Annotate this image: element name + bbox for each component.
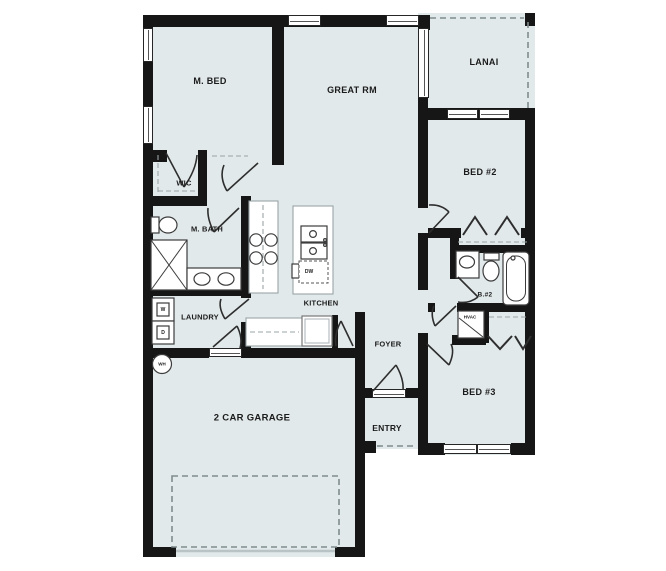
garage-entry-door: [213, 326, 241, 348]
label-bath2: B.#2: [478, 292, 493, 299]
bath2-vanity-icon: [456, 251, 479, 278]
label-m-bath: M. BATH: [191, 225, 223, 234]
msuite-hall-door: [222, 163, 258, 191]
floor-plan: M. BED GREAT RM LANAI BED #2 WIC M. BATH…: [0, 0, 666, 571]
pantry-door: [336, 321, 353, 346]
label-bed2: BED #2: [463, 167, 496, 177]
label-kitchen: KITCHEN: [304, 299, 339, 308]
label-washer: W: [161, 307, 166, 313]
refrigerator-icon: [302, 316, 332, 346]
label-water-heater: WH: [158, 362, 166, 367]
label-great-rm: GREAT RM: [327, 85, 377, 95]
hvac-door: [432, 306, 456, 326]
label-bed3: BED #3: [462, 387, 495, 397]
label-dishwasher: DW: [305, 269, 313, 275]
bed2-closet-bifold-icon: [463, 217, 519, 235]
label-wic: WIC: [176, 179, 191, 188]
sink-icon: [301, 226, 327, 259]
front-door: [373, 365, 403, 391]
label-lanai: LANAI: [470, 57, 499, 67]
label-garage: 2 CAR GARAGE: [214, 413, 290, 424]
toilet-icon: [151, 217, 177, 233]
bath2-door: [458, 277, 478, 302]
bed3-door: [427, 344, 453, 365]
laundry-door: [220, 299, 249, 319]
label-foyer: FOYER: [375, 340, 402, 349]
bed3-closet-bifold-icon: [488, 336, 531, 349]
double-vanity-icon: [187, 268, 241, 290]
garage-door-dashed: [172, 476, 339, 551]
label-dryer: D: [161, 330, 165, 336]
label-m-bed: M. BED: [193, 76, 226, 86]
label-hvac: HVAC: [464, 315, 476, 320]
bed2-door: [429, 205, 449, 233]
bathtub-icon: [503, 252, 529, 305]
bath2-toilet-icon: [483, 253, 499, 281]
label-laundry: LAUNDRY: [181, 313, 219, 322]
kitchen-range-counter: [249, 201, 278, 293]
shower-icon: [151, 240, 187, 290]
label-entry: ENTRY: [372, 423, 402, 433]
